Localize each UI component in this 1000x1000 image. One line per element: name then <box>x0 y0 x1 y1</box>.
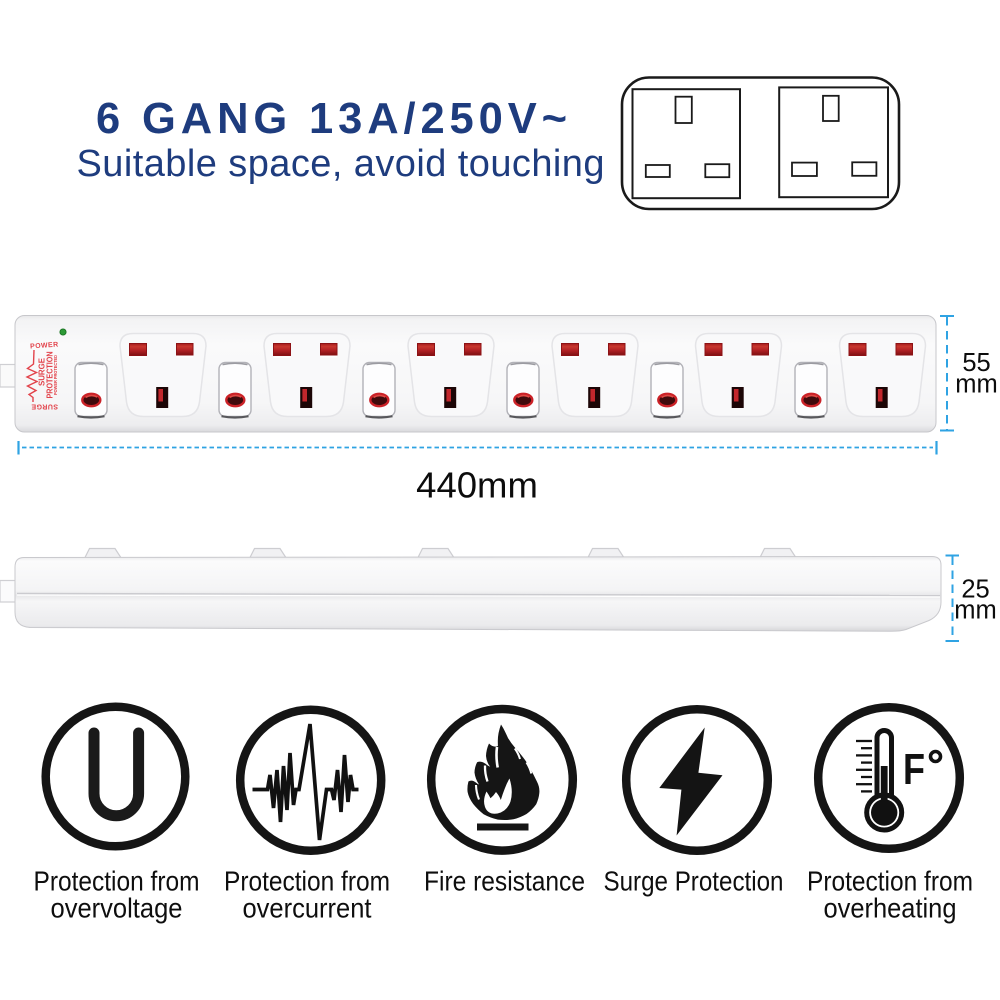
svg-text:overvoltage: overvoltage <box>51 893 183 924</box>
svg-text:Suitable space, avoid touching: Suitable space, avoid touching <box>77 143 605 185</box>
svg-text:F: F <box>903 745 925 794</box>
svg-text:Surge Protection: Surge Protection <box>604 866 784 897</box>
svg-text:mm: mm <box>955 371 997 399</box>
svg-text:overheating: overheating <box>824 893 957 924</box>
svg-text:overcurrent: overcurrent <box>243 893 372 924</box>
svg-text:6 GANG 13A/250V~: 6 GANG 13A/250V~ <box>96 95 567 143</box>
svg-text:POWER PROTECTED: POWER PROTECTED <box>53 355 58 395</box>
svg-text:SURGE: SURGE <box>31 403 58 410</box>
svg-text:440mm: 440mm <box>416 465 538 506</box>
svg-text:Fire resistance: Fire resistance <box>424 866 585 897</box>
svg-text:mm: mm <box>954 597 996 625</box>
